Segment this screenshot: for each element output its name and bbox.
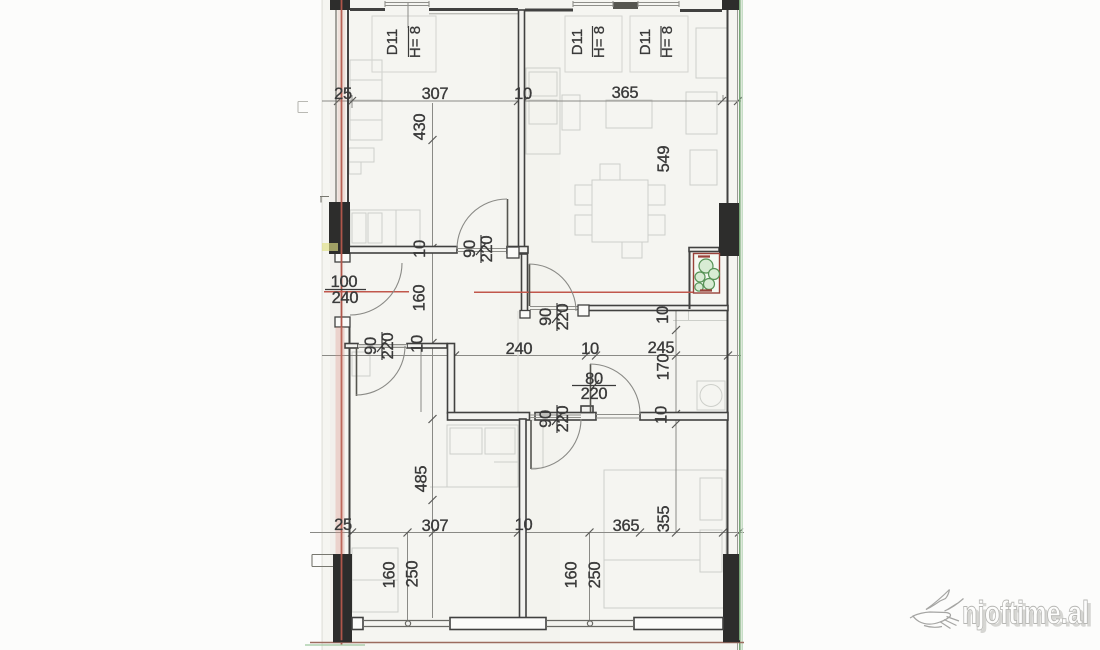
svg-text:250: 250 xyxy=(404,561,422,588)
svg-text:D11: D11 xyxy=(384,29,401,55)
svg-text:240: 240 xyxy=(332,289,359,307)
svg-text:D11: D11 xyxy=(569,29,586,55)
svg-text:430: 430 xyxy=(411,114,429,141)
svg-text:307: 307 xyxy=(422,85,449,103)
svg-text:365: 365 xyxy=(613,517,640,535)
svg-text:H= 8: H= 8 xyxy=(659,26,676,58)
svg-text:240: 240 xyxy=(506,340,533,358)
svg-text:220: 220 xyxy=(554,304,572,331)
svg-text:D11: D11 xyxy=(637,29,654,55)
svg-text:10: 10 xyxy=(409,335,427,353)
svg-text:220: 220 xyxy=(478,236,496,263)
svg-text:25: 25 xyxy=(334,85,352,103)
svg-text:220: 220 xyxy=(581,385,608,403)
svg-text:25: 25 xyxy=(334,516,352,534)
svg-text:njoftime.al: njoftime.al xyxy=(962,595,1089,631)
svg-text:160: 160 xyxy=(411,285,429,312)
svg-text:365: 365 xyxy=(612,84,639,102)
svg-text:355: 355 xyxy=(655,506,673,533)
svg-text:307: 307 xyxy=(422,517,449,535)
svg-text:10: 10 xyxy=(515,516,533,534)
svg-text:10: 10 xyxy=(581,340,599,358)
svg-text:160: 160 xyxy=(563,562,581,589)
svg-text:220: 220 xyxy=(554,406,572,433)
svg-text:485: 485 xyxy=(413,466,431,493)
svg-text:H= 8: H= 8 xyxy=(407,26,424,58)
svg-text:220: 220 xyxy=(379,333,397,360)
svg-text:160: 160 xyxy=(381,562,399,589)
svg-text:10: 10 xyxy=(411,240,429,258)
svg-text:10: 10 xyxy=(514,85,532,103)
svg-text:10: 10 xyxy=(653,406,671,424)
svg-text:250: 250 xyxy=(586,562,604,589)
svg-text:170: 170 xyxy=(655,354,673,381)
svg-text:549: 549 xyxy=(655,146,673,173)
svg-text:H= 8: H= 8 xyxy=(591,26,608,58)
svg-text:10: 10 xyxy=(654,306,672,324)
